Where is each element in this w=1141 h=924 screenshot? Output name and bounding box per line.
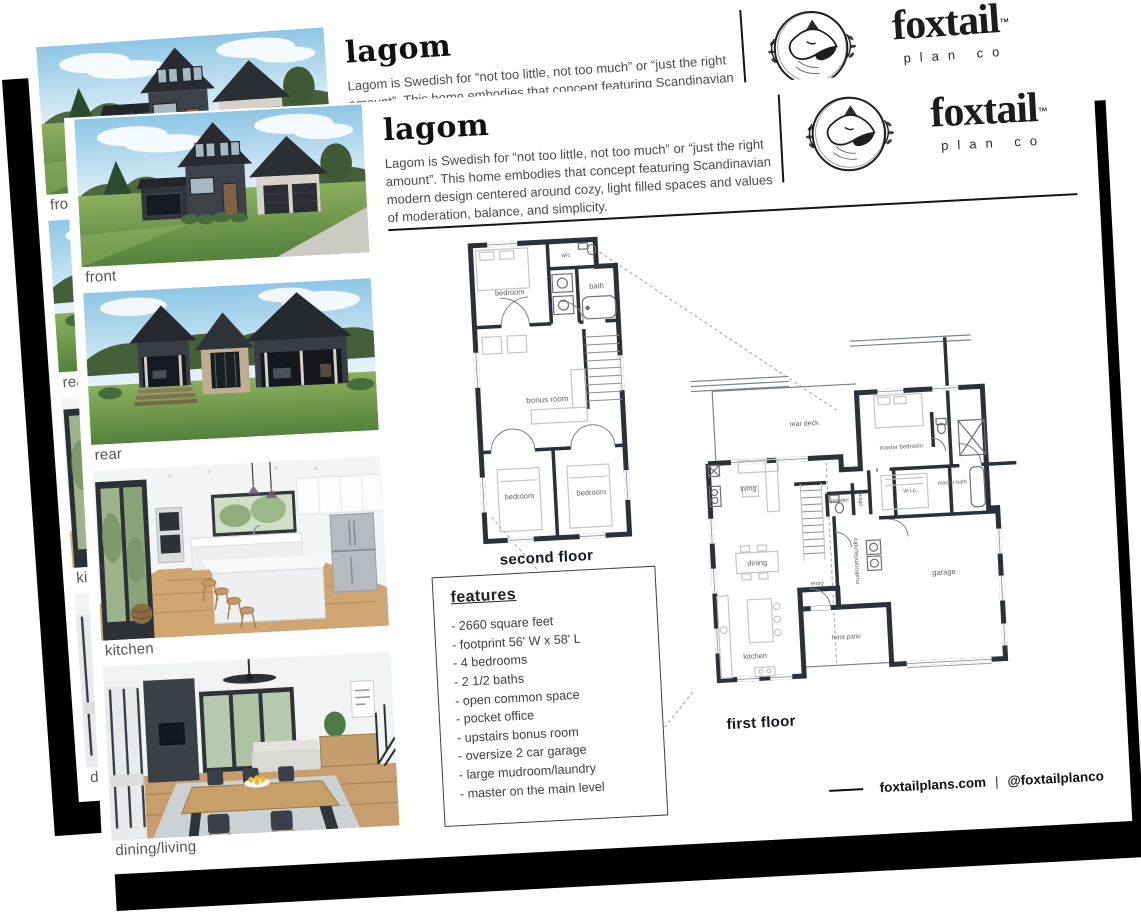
photo-column: front [74,104,401,866]
stairs [584,335,622,401]
brand-name: foxtail [929,85,1039,137]
footer-separator: | [995,774,999,789]
room-label-bedroom3: bedroom [576,487,606,498]
foxtail-logo: foxtail™ plan co [799,71,1080,189]
kitchen-photo: kitchen [93,456,391,663]
room-label-kitchen: kitchen [743,651,767,661]
stairs [800,483,825,561]
flyer-page-front: front [64,64,1132,875]
front-exterior-illustration [74,104,369,267]
room-label-bedroom2: bedroom [504,491,534,502]
features-list: - 2660 square feet - footprint 56' W x 5… [451,607,656,803]
room-label-wc: w/c [560,252,571,260]
footer-rule [829,788,863,792]
room-label-rear-deck: rear deck [789,420,819,429]
dining-living-interior-illustration [103,652,400,841]
room-label-entry: entry [811,581,825,588]
kitchen-interior-illustration [93,456,390,641]
features-box: features - 2660 square feet - footprint … [432,566,669,827]
furniture [707,393,937,678]
room-label-bonus: bonus room [526,394,569,405]
room-label-living: living [740,485,756,493]
first-floor-plan: rear deck master bedroom master bath w.i… [674,313,1033,702]
door-swings [483,293,615,452]
room-label-powder: powder [831,497,849,504]
dining-living-photo: dining/living [103,652,401,863]
room-label-dining: dining [747,558,767,568]
header-divider [778,95,785,183]
room-label-bedroom1: bedroom [495,287,525,298]
room-label-master-bedroom: master bedroom [879,443,923,451]
footer: foxtailplans.com | @foxtailplanco [828,768,1104,797]
trademark-symbol: ™ [999,17,1010,29]
door-swings [802,436,988,609]
room-label-wic: w.i.c. [902,487,918,495]
brand-name: foxtail [890,0,1000,49]
flyer-mockup-scene: front [0,0,1141,924]
foxtail-wordmark: foxtail™ plan co [861,0,1041,68]
room-label-front-patio: front patio [832,633,862,642]
features-heading: features [450,579,646,607]
trademark-symbol: ™ [1037,106,1048,118]
rear-photo: rear [83,278,380,467]
room-label-bath: bath [589,281,604,291]
second-floor-caption: second floor [499,547,593,569]
second-floor-plan: bedroom w/c bath bonus room bedroom bedr… [467,235,633,544]
page-title: lagom [382,108,490,149]
foxtail-wordmark: foxtail™ plan co [900,85,1079,155]
first-floor-caption: first floor [726,713,796,734]
room-label-master-bath: master bath [938,479,967,487]
rear-exterior-illustration [83,278,379,445]
fox-logo-icon [799,82,900,185]
front-photo: front [74,104,371,289]
room-label-office: office [858,493,865,506]
room-label-mudroom: mudroom/laundry [853,538,861,585]
footer-website: foxtailplans.com [879,775,986,796]
page-title: lagom [344,28,452,70]
footer-social-handle: @foxtailplanco [1007,768,1104,788]
sideboard [320,734,379,767]
room-label-garage: garage [932,567,956,577]
